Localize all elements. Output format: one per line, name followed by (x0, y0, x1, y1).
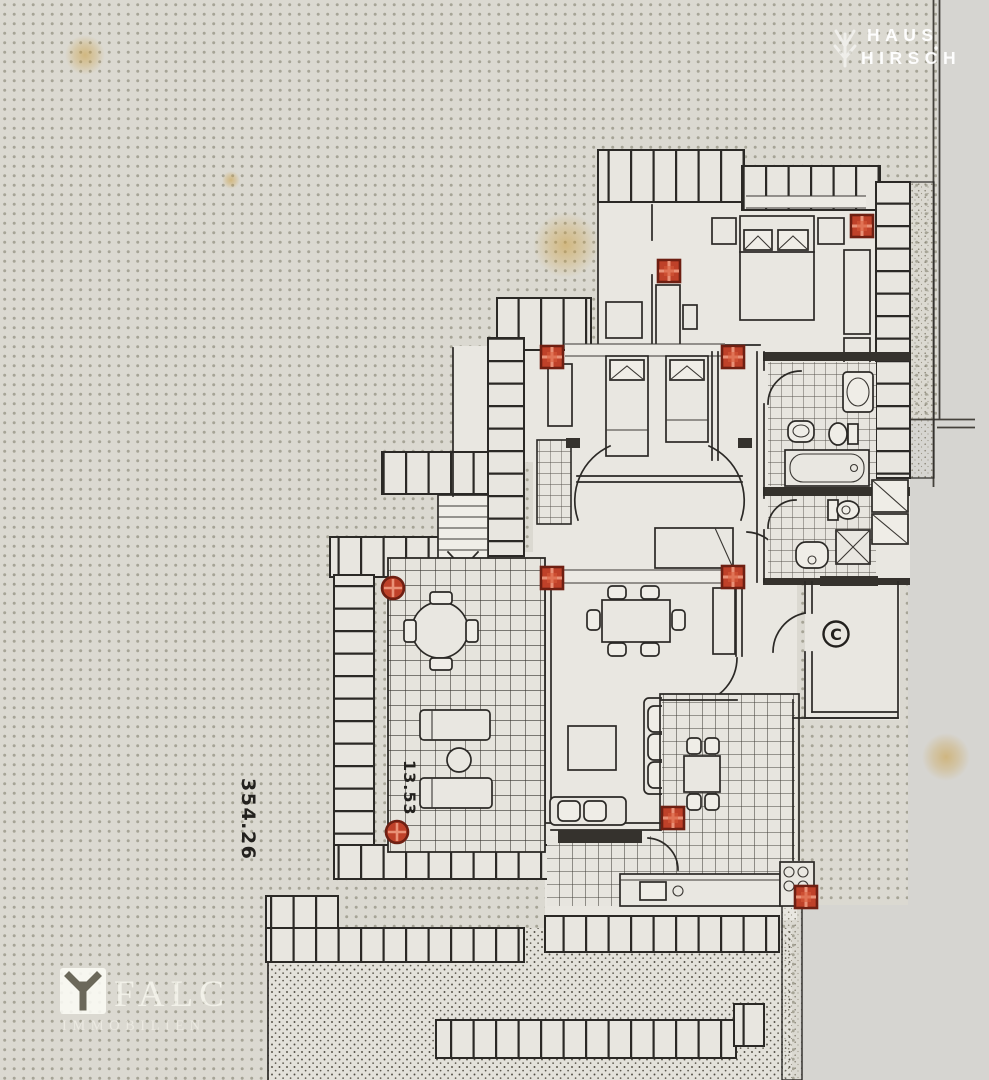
bathtub (785, 450, 869, 486)
falc-name: FALC (114, 974, 230, 1015)
floor-plan-drawing: C (0, 0, 989, 1080)
sun-lounger-2 (420, 778, 492, 808)
sideboard (655, 528, 733, 568)
dimension-area: 354.26 (237, 778, 259, 860)
shower (836, 530, 870, 564)
paper-stain (222, 171, 240, 189)
paper-stain (65, 35, 105, 75)
dimension-terrace: 13.53 (400, 760, 419, 816)
photo-marker-square (541, 346, 563, 368)
washbasin-upper (843, 372, 873, 412)
falc-subtitle: IMMOBILIEN (62, 1018, 206, 1034)
window-living (556, 570, 736, 583)
photo-marker-square (795, 886, 817, 908)
haus-hirsch-line1: HAUS (867, 25, 939, 45)
paper-stain (922, 733, 970, 781)
dresser-bedroom2 (548, 364, 572, 426)
window-bedroom2 (565, 344, 725, 356)
nightstand-left (712, 218, 736, 244)
trademark-dot (934, 46, 938, 50)
coffee-table (568, 726, 616, 770)
photo-marker-square (722, 346, 744, 368)
paper-stain (533, 212, 599, 278)
shafts (872, 480, 908, 544)
toilet-upper (829, 423, 858, 445)
photo-marker-square (662, 807, 684, 829)
single-bed-1 (606, 356, 648, 456)
bidet (788, 421, 814, 442)
double-bed (740, 216, 814, 320)
nightstand-right (818, 218, 844, 244)
tall-cabinet (713, 588, 735, 654)
washbasin-lower (796, 542, 828, 568)
scanned-floor-plan-page: C (0, 0, 989, 1080)
photo-marker-square (851, 215, 873, 237)
single-bed-2 (666, 356, 708, 442)
window-bedroom1 (746, 196, 866, 208)
desk-bedroom1 (683, 305, 697, 329)
entrance-letter: C (830, 625, 842, 644)
photo-marker-circle (386, 821, 408, 843)
falc-emblem-icon (60, 968, 106, 1014)
cabinet-bedroom1 (656, 285, 680, 345)
toilet-lower (828, 500, 859, 520)
kitchen-counter (620, 874, 780, 906)
photo-marker-square (722, 566, 744, 588)
wardrobe (844, 250, 870, 334)
photo-marker-circle (382, 577, 404, 599)
haus-hirsch-line2: HIRSCH (861, 48, 961, 68)
falc-watermark: FALC IMMOBILIEN (60, 968, 230, 1034)
cabinet-closet (606, 302, 642, 338)
photo-marker-square (541, 567, 563, 589)
sofa-horizontal (550, 797, 626, 825)
sun-lounger-1 (420, 710, 490, 740)
terrace-side-table (447, 748, 471, 772)
kitchen-sideboard (558, 830, 642, 843)
photo-marker-square (658, 260, 680, 282)
